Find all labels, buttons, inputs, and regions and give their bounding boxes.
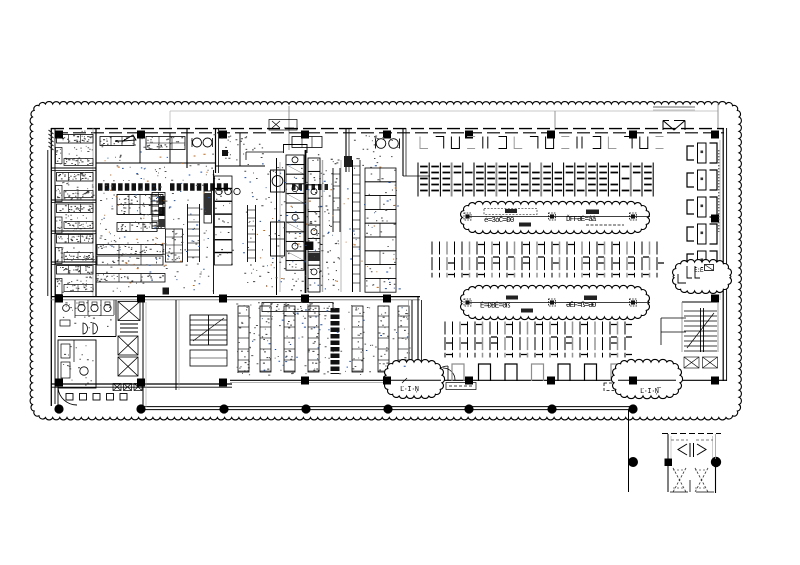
svg-text:Ė:Ē: Ė:Ē (694, 267, 704, 274)
svg-text:Ľ·I·Ņ̣: Ľ·I·Ņ̣ (400, 386, 419, 394)
svg-text:Ė=ĐBĖ=Əß: Ė=ĐBĖ=Əß (480, 302, 511, 311)
svg-text:ĎFFƏĖ=ȧȧ: ĎFFƏĖ=ȧȧ (566, 215, 597, 224)
svg-text:ƏĒF=ß=ƏĐ: ƏĒF=ß=ƏĐ (566, 301, 597, 310)
svg-text:ė=3òĈ=Ð0: ė=3òĈ=Ð0 (484, 215, 515, 225)
